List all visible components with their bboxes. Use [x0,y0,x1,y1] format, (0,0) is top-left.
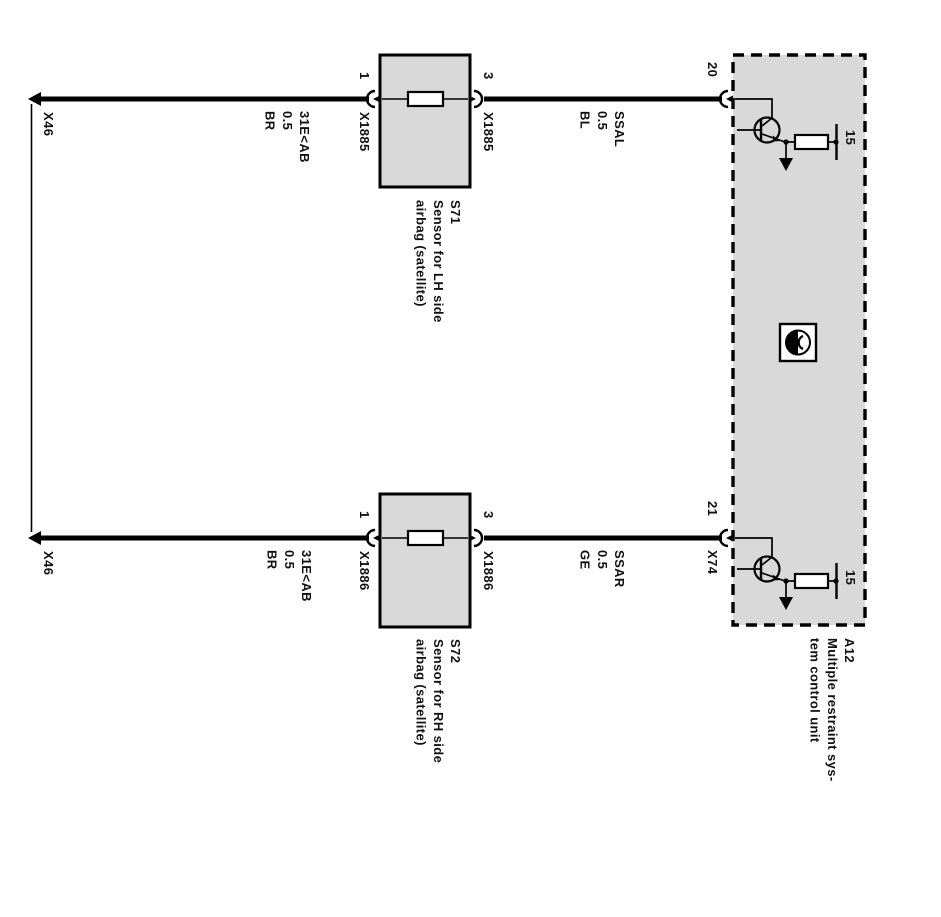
wire-size: 0.5 [594,550,611,588]
pin-label-s71-1: 1 [356,72,373,80]
resistor-icon [408,531,443,545]
component-desc: tem control unit [807,638,824,782]
control-unit-a12-label: A12 Multiple restraint sys- tem control … [807,638,858,782]
pin-label-s72-1: 1 [356,511,373,519]
connector-label-x46-bottom: X46 [40,551,57,575]
emblem-symbol [780,324,816,361]
sensor-s72-label: S72 Sensor for RH side airbag (satellite… [413,639,464,763]
sensor-s72-outline [380,494,470,627]
wire-label-bottom-right: SSAR 0.5 GE [577,550,628,588]
wire-size: 0.5 [594,111,611,147]
pin-label-a12-20: 20 [704,62,721,77]
connector-label-x74: X74 [704,550,721,574]
resistor-icon [408,92,443,106]
resistor-icon [795,135,828,149]
left-rail [28,92,41,545]
wire-color: BL [577,111,594,147]
wire-color: BR [262,111,279,163]
wiring-diagram: X46 X46 31E<AB 0.5 BR 1 3 X1885 X1885 S7… [0,0,941,917]
terminal-label-15-bottom: 15 [842,570,859,585]
wire-name: 31E<AB [296,111,313,163]
component-id: S72 [447,639,464,763]
wire-label-top-left: 31E<AB 0.5 BR [262,111,313,163]
sensor-s71-label: S71 Sensor for LH side airbag (satellite… [413,200,464,323]
sensor-s71-box [380,55,470,187]
component-id: S71 [447,200,464,323]
component-desc: airbag (satellite) [413,200,430,323]
connector-label-x1885-right: X1885 [480,112,497,152]
pin-label-s72-3: 3 [480,511,497,519]
wire-color: GE [577,550,594,588]
component-id: A12 [841,638,858,782]
component-desc: Sensor for RH side [430,639,447,763]
wire-name: SSAR [611,550,628,588]
wire-label-top-right: SSAL 0.5 BL [577,111,628,147]
sensor-s71-outline [380,55,470,187]
wire-name: 31E<AB [298,550,315,602]
wire-label-bottom-left: 31E<AB 0.5 BR [264,550,315,602]
terminal-label-15-top: 15 [842,130,859,145]
wire-size: 0.5 [279,111,296,163]
sensor-s72-box [380,494,470,627]
component-desc: Sensor for LH side [430,200,447,323]
component-desc: airbag (satellite) [413,639,430,763]
diagram-line-art [0,0,941,917]
connector-label-x46-top: X46 [40,112,57,136]
wire-name: SSAL [611,111,628,147]
wire-size: 0.5 [281,550,298,602]
connector-label-x1886-left: X1886 [356,551,373,591]
resistor-icon [795,574,828,588]
connector-label-x1885-left: X1885 [356,112,373,152]
component-desc: Multiple restraint sys- [824,638,841,782]
pin-label-s71-3: 3 [480,72,497,80]
pin-label-a12-21: 21 [704,501,721,516]
wire-color: BR [264,550,281,602]
connector-label-x1886-right: X1886 [480,551,497,591]
